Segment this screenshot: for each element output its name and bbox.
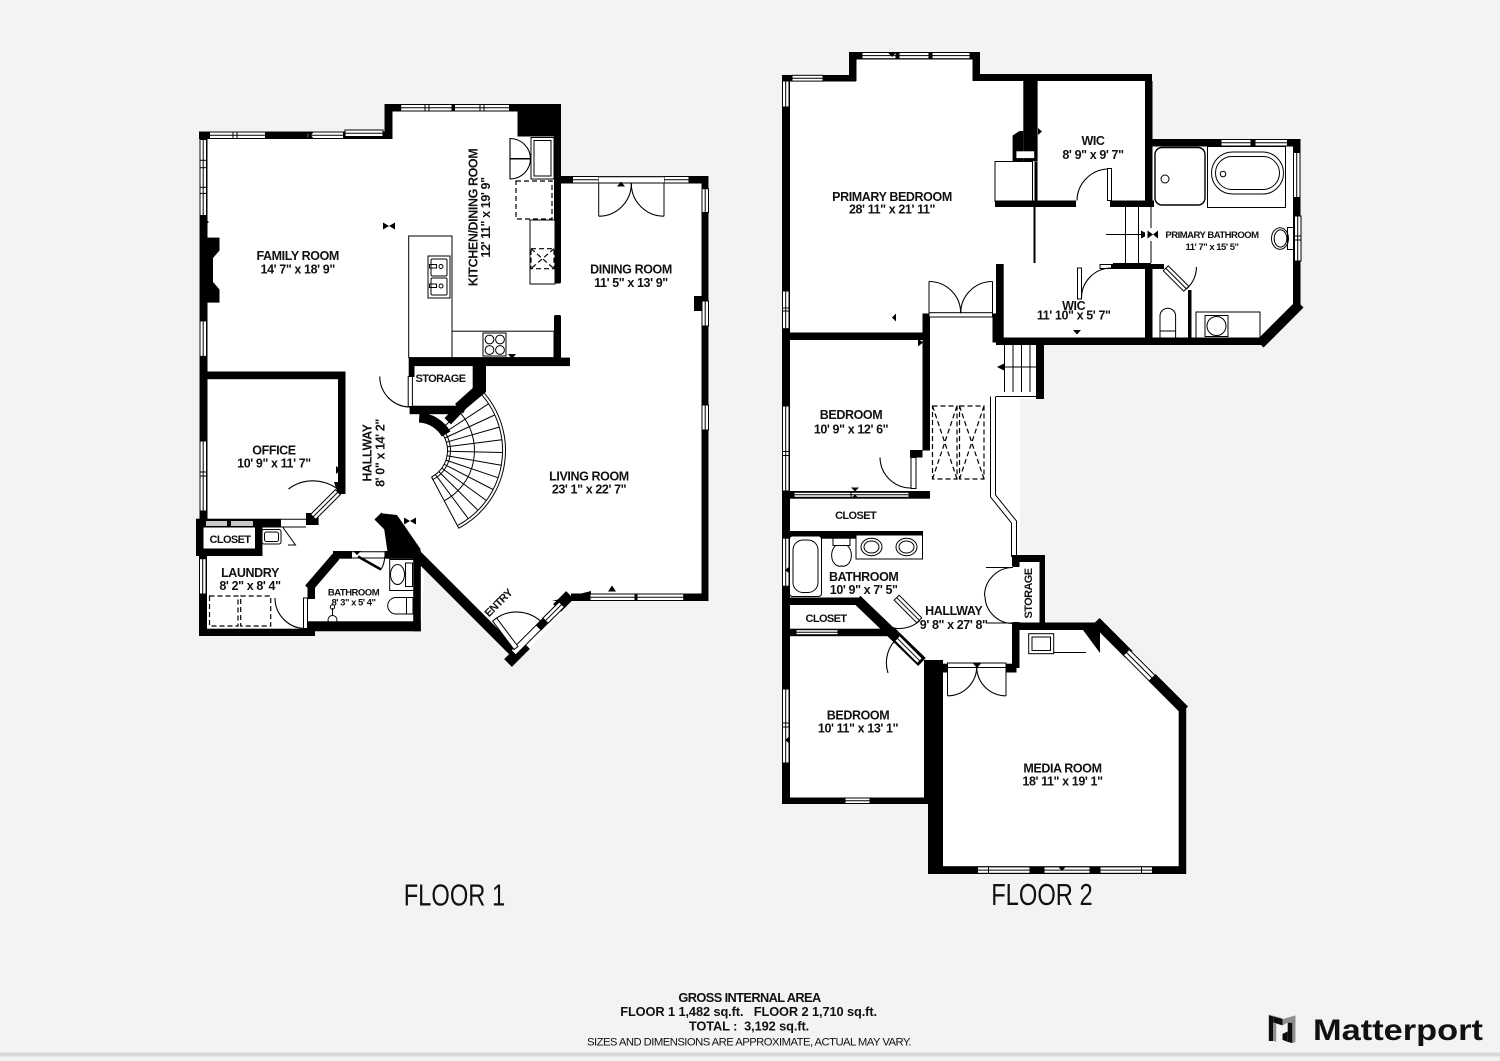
svg-text:WIC: WIC — [1081, 134, 1104, 148]
svg-text:10' 9" x 7' 5": 10' 9" x 7' 5" — [830, 583, 898, 597]
svg-text:FAMILY ROOM: FAMILY ROOM — [256, 249, 338, 263]
svg-text:11' 10" x 5' 7": 11' 10" x 5' 7" — [1037, 309, 1111, 323]
svg-text:28' 11" x 21' 11": 28' 11" x 21' 11" — [849, 203, 936, 217]
svg-text:HALLWAY: HALLWAY — [925, 604, 983, 618]
svg-text:TOTAL : 3,192 sq.ft.: TOTAL : 3,192 sq.ft. — [689, 1019, 809, 1034]
svg-text:8' 9" x 9' 7": 8' 9" x 9' 7" — [1062, 148, 1124, 162]
svg-text:MEDIA ROOM: MEDIA ROOM — [1023, 762, 1101, 776]
svg-text:8' 0" x 14' 2": 8' 0" x 14' 2" — [374, 419, 388, 487]
svg-text:12' 11" x 19' 9": 12' 11" x 19' 9" — [479, 177, 493, 258]
svg-text:LAUNDRY: LAUNDRY — [221, 566, 280, 580]
svg-text:14' 7" x 18' 9": 14' 7" x 18' 9" — [261, 262, 336, 276]
svg-text:FLOOR 2: FLOOR 2 — [991, 877, 1092, 912]
svg-text:LIVING ROOM: LIVING ROOM — [549, 469, 629, 483]
svg-text:10' 11" x 13' 1": 10' 11" x 13' 1" — [818, 722, 899, 736]
svg-text:11' 5" x 13' 9": 11' 5" x 13' 9" — [594, 276, 668, 290]
svg-text:GROSS INTERNAL AREA: GROSS INTERNAL AREA — [678, 990, 821, 1005]
svg-text:8' 2" x 8' 4": 8' 2" x 8' 4" — [219, 579, 281, 593]
svg-text:BEDROOM: BEDROOM — [827, 709, 889, 723]
svg-text:CLOSET: CLOSET — [209, 534, 251, 546]
svg-text:BEDROOM: BEDROOM — [820, 408, 882, 422]
svg-text:FLOOR 1: FLOOR 1 — [404, 878, 506, 913]
svg-text:BATHROOM: BATHROOM — [829, 570, 898, 584]
svg-text:SIZES AND DIMENSIONS ARE APPRO: SIZES AND DIMENSIONS ARE APPROXIMATE, AC… — [587, 1037, 911, 1049]
svg-text:10' 9" x 12' 6": 10' 9" x 12' 6" — [814, 422, 889, 436]
svg-text:CLOSET: CLOSET — [805, 613, 847, 625]
svg-text:DINING ROOM: DINING ROOM — [590, 263, 672, 277]
svg-text:PRIMARY BATHROOM: PRIMARY BATHROOM — [1165, 230, 1259, 241]
svg-text:10' 9" x 11' 7": 10' 9" x 11' 7" — [237, 456, 311, 470]
svg-text:8' 3" x 5' 4": 8' 3" x 5' 4" — [331, 598, 375, 609]
svg-text:STORAGE: STORAGE — [1023, 568, 1035, 618]
svg-text:9' 8" x 27' 8": 9' 8" x 27' 8" — [920, 618, 988, 632]
svg-text:FLOOR 1 1,482 sq.ft. FLOOR 2: FLOOR 1 1,482 sq.ft. FLOOR 2 1,710 sq.ft… — [620, 1004, 877, 1019]
svg-text:OFFICE: OFFICE — [252, 443, 295, 457]
svg-text:CLOSET: CLOSET — [835, 510, 877, 522]
svg-text:STORAGE: STORAGE — [416, 373, 466, 385]
svg-text:HALLWAY: HALLWAY — [361, 423, 375, 481]
svg-text:18' 11" x 19' 1": 18' 11" x 19' 1" — [1022, 775, 1103, 789]
svg-text:Matterport: Matterport — [1313, 1014, 1483, 1047]
svg-text:11' 7" x 15' 5": 11' 7" x 15' 5" — [1185, 242, 1238, 253]
svg-text:23' 1" x 22' 7": 23' 1" x 22' 7" — [552, 482, 627, 496]
